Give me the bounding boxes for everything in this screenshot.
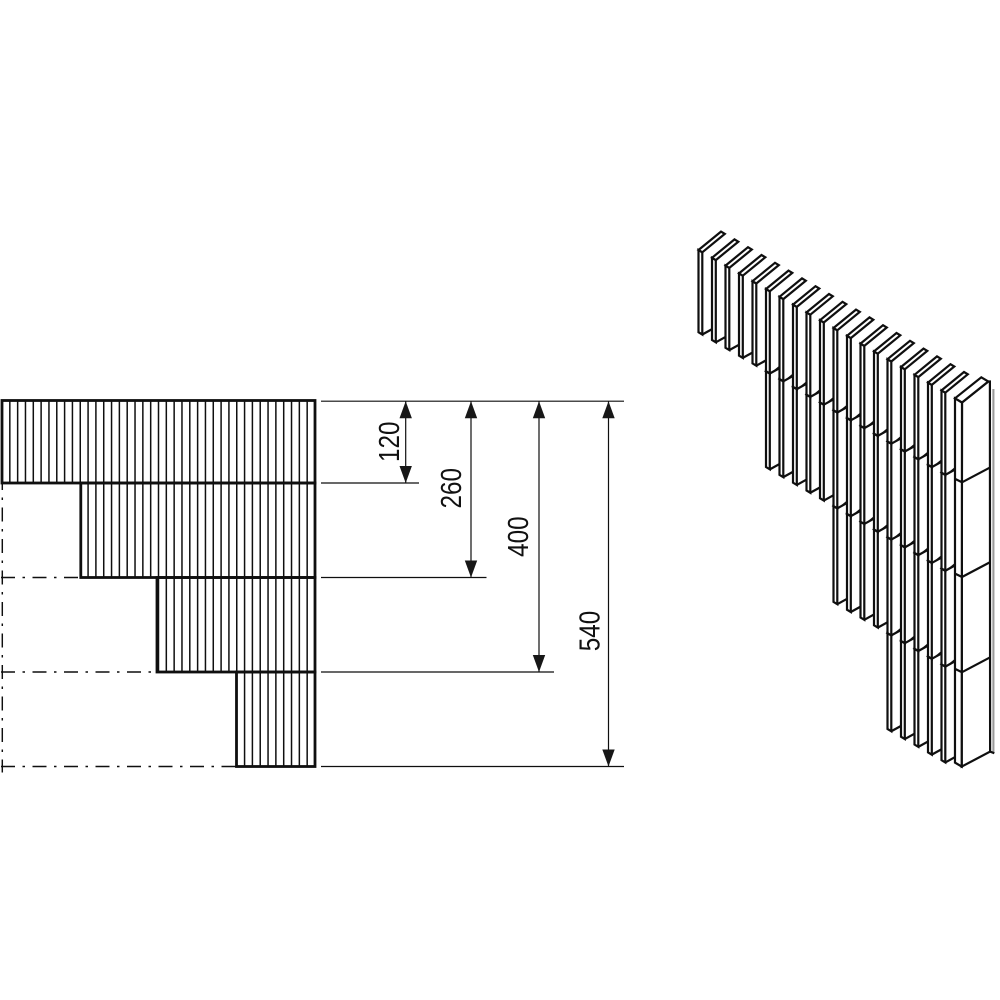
svg-text:260: 260 [436,468,468,509]
svg-text:540: 540 [575,611,607,652]
svg-text:120: 120 [374,421,406,462]
svg-text:400: 400 [503,516,535,557]
